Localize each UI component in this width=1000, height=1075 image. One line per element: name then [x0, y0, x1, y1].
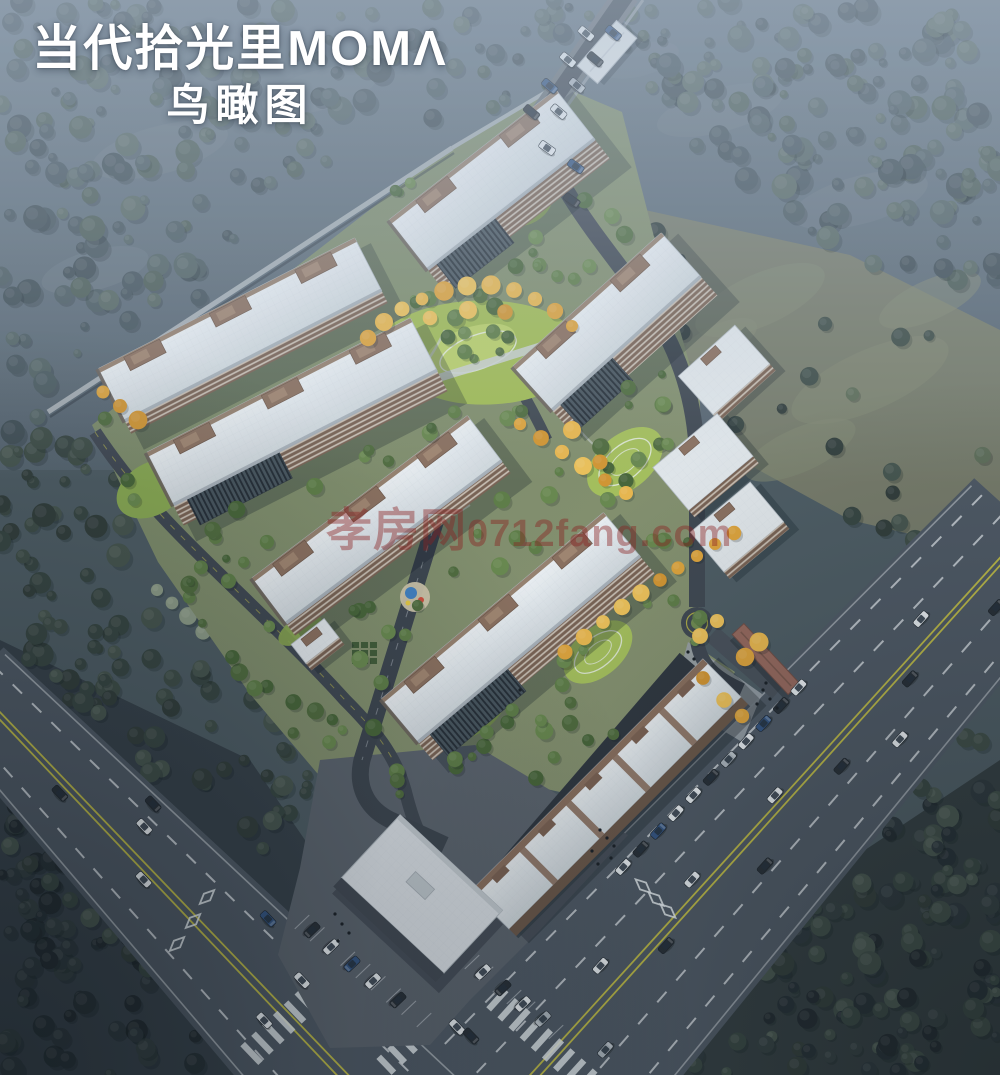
atmosphere-overlay [0, 0, 1000, 1075]
aerial-site-rendering [0, 0, 1000, 1075]
rendering-stage: 当代拾光里MOMΛ 鸟瞰图 孝房网0712fang.com [0, 0, 1000, 1075]
